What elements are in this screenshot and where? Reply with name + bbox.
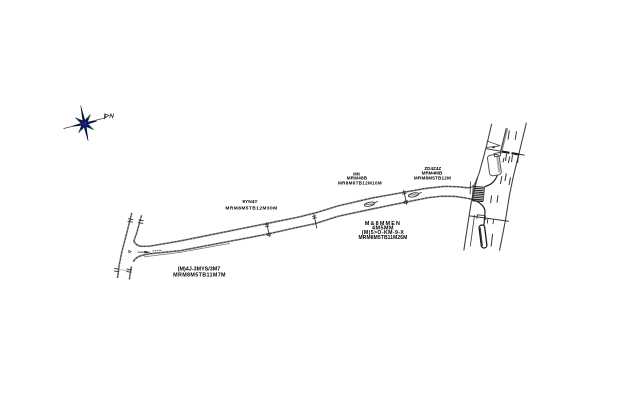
svg-text:MRM8M5TB11M26M: MRM8M5TB11M26M (359, 235, 408, 241)
svg-text:MR8M6TB12M10M: MR8M6TB12M10M (338, 181, 382, 186)
svg-text:MRM8M5TB12M: MRM8M5TB12M (414, 175, 451, 180)
svg-text:MRM8M5TB11M7M: MRM8M5TB11M7M (173, 273, 226, 279)
svg-text:MRM8M5TB12M30M: MRM8M5TB12M30M (225, 206, 277, 212)
svg-text:9YN4Y: 9YN4Y (242, 199, 258, 205)
